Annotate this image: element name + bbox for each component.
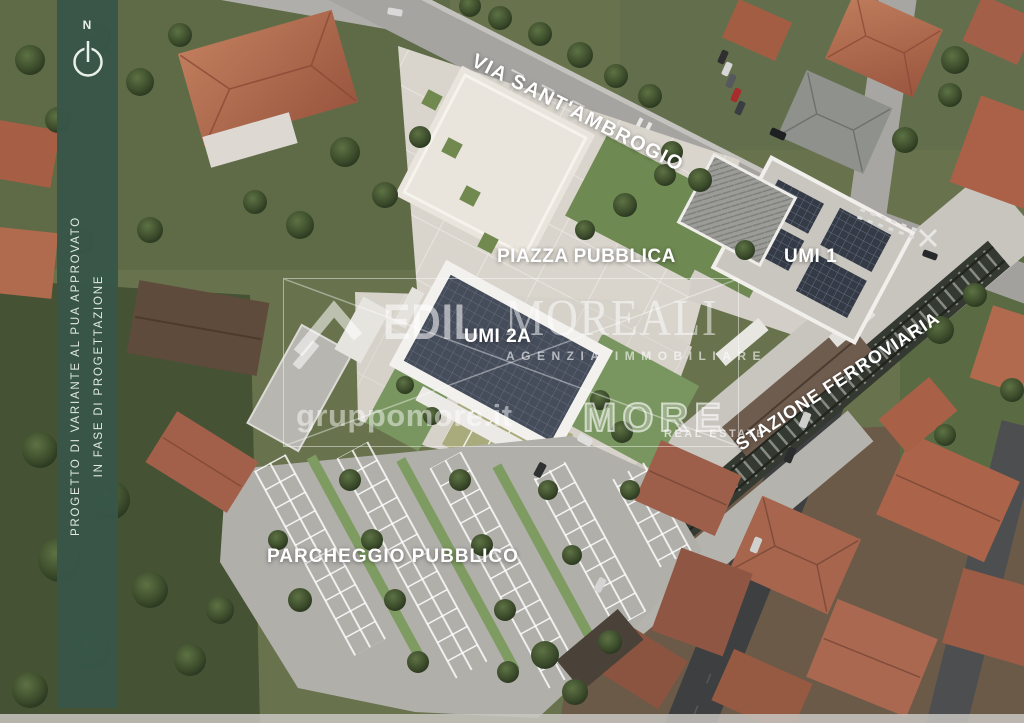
project-status-line2: IN FASE DI PROGETTAZIONE: [88, 216, 111, 536]
watermark-brand-moreali: MOREALI: [505, 289, 718, 348]
north-compass-icon: N: [57, 18, 118, 98]
project-status-text: PROGETTO DI VARIANTE AL PUA APPROVATO IN…: [65, 216, 111, 536]
compass-north-letter: N: [57, 18, 118, 32]
label-umi-1: UMI 1: [784, 246, 837, 268]
label-umi-2a: UMI 2A: [464, 326, 531, 348]
project-status-line1: PROGETTO DI VARIANTE AL PUA APPROVATO: [65, 216, 88, 536]
edil-chevron-logo: [290, 291, 372, 369]
watermark-website: gruppomore.it: [296, 398, 513, 434]
label-parcheggio-pubblico: PARCHEGGIO PUBBLICO: [267, 546, 519, 568]
project-status-banner: N PROGETTO DI VARIANTE AL PUA APPROVATO …: [57, 0, 118, 708]
watermark-brand-tagline: AGENZIA IMMOBILIARE: [506, 349, 767, 363]
compass-glyph: [68, 34, 108, 82]
image-bottom-edge: [0, 714, 1024, 723]
label-piazza-pubblica: PIAZZA PUBBLICA: [497, 246, 676, 268]
site-plan-rendering: N PROGETTO DI VARIANTE AL PUA APPROVATO …: [0, 0, 1024, 723]
